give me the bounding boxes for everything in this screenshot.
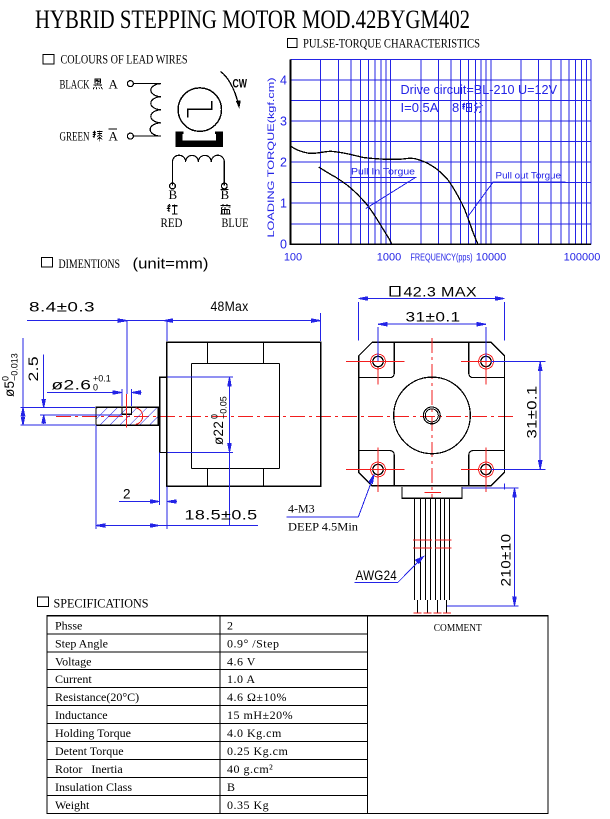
svg-text:COMMENT: COMMENT <box>434 622 482 634</box>
svg-text:210±10: 210±10 <box>499 534 514 587</box>
svg-text:4.0 Kg.cm: 4.0 Kg.cm <box>227 726 282 740</box>
svg-text:DEEP 4.5Min: DEEP 4.5Min <box>288 520 358 534</box>
svg-text:Pull out Torgue: Pull out Torgue <box>496 171 562 182</box>
svg-text:COLOURS OF LEAD WIRES: COLOURS OF LEAD WIRES <box>61 52 188 67</box>
svg-text:I=0.5A: I=0.5A <box>401 100 439 115</box>
svg-text:A: A <box>109 77 119 92</box>
svg-text:3: 3 <box>280 115 287 129</box>
svg-text:Detent Torque: Detent Torque <box>55 744 124 758</box>
svg-text:0: 0 <box>93 383 98 393</box>
svg-text:8: 8 <box>452 100 459 115</box>
svg-text:100: 100 <box>284 252 302 264</box>
svg-text:18.5±0.5: 18.5±0.5 <box>185 508 258 523</box>
svg-text:GREEN: GREEN <box>60 130 90 144</box>
svg-text:4-M3: 4-M3 <box>288 502 315 516</box>
svg-text:8.4±0.3: 8.4±0.3 <box>29 300 95 315</box>
svg-text:FREQUENCY(pps): FREQUENCY(pps) <box>411 252 473 264</box>
svg-text:−0.013: −0.013 <box>10 353 20 381</box>
svg-text:BLUE: BLUE <box>222 216 249 230</box>
svg-text:B: B <box>169 187 178 202</box>
svg-text:RED: RED <box>161 216 183 230</box>
svg-text:0.9° /Step: 0.9° /Step <box>227 636 279 650</box>
svg-text:AWG24: AWG24 <box>356 568 398 583</box>
svg-text:Phsse: Phsse <box>55 618 82 632</box>
svg-text:31±0.1: 31±0.1 <box>406 310 461 325</box>
svg-text:10000: 10000 <box>476 252 507 264</box>
svg-text:31±0.1: 31±0.1 <box>525 386 540 439</box>
svg-text:B: B <box>227 780 236 794</box>
svg-text:15 mH±20%: 15 mH±20% <box>227 708 293 722</box>
svg-text:Weight: Weight <box>55 798 90 812</box>
svg-text:4: 4 <box>280 74 287 88</box>
svg-text:0.35 Kg: 0.35 Kg <box>227 798 269 812</box>
svg-text:CW: CW <box>233 79 248 91</box>
svg-text:ø5: ø5 <box>2 381 17 397</box>
svg-text:2: 2 <box>227 618 234 632</box>
svg-text:0.25 Kg.cm: 0.25 Kg.cm <box>227 744 288 758</box>
svg-text:Inductance: Inductance <box>55 708 108 722</box>
svg-text:Resistance(20°C): Resistance(20°C) <box>55 690 139 704</box>
svg-text:4.6 Ω±10%: 4.6 Ω±10% <box>227 690 287 704</box>
svg-text:0: 0 <box>280 238 287 252</box>
svg-text:Voltage: Voltage <box>55 654 91 668</box>
svg-text:48Max: 48Max <box>211 299 249 314</box>
svg-text:(unit=mm): (unit=mm) <box>133 256 209 273</box>
svg-text:−0.05: −0.05 <box>219 396 229 419</box>
svg-text:BLACK: BLACK <box>60 78 90 92</box>
svg-text:2: 2 <box>280 156 287 170</box>
svg-text:ø2.6: ø2.6 <box>51 378 91 393</box>
svg-text:Rotor Inertia: Rotor Inertia <box>55 762 123 776</box>
svg-text:SPECIFICATIONS: SPECIFICATIONS <box>54 596 149 611</box>
svg-text:Holding Torque: Holding Torque <box>55 726 131 740</box>
svg-text:4.6 V: 4.6 V <box>227 654 256 668</box>
svg-text:2: 2 <box>123 487 131 502</box>
svg-text:40 g.cm²: 40 g.cm² <box>227 762 273 776</box>
svg-text:DIMENTIONS: DIMENTIONS <box>59 256 121 271</box>
svg-text:LOADING TORQUE(kgf.cm): LOADING TORQUE(kgf.cm) <box>266 78 277 238</box>
svg-text:Step Angle: Step Angle <box>55 636 108 650</box>
svg-text:100000: 100000 <box>564 252 601 264</box>
svg-text:ø22: ø22 <box>211 421 226 445</box>
svg-text:Insulation Class: Insulation Class <box>55 780 132 794</box>
svg-text:Pull In Torgue: Pull In Torgue <box>351 167 415 178</box>
svg-text:42.3 MAX: 42.3 MAX <box>404 285 478 300</box>
svg-text:1000: 1000 <box>377 252 401 264</box>
svg-text:Drive circuit=BL-210 U=12V: Drive circuit=BL-210 U=12V <box>401 82 558 97</box>
svg-text:1: 1 <box>280 197 287 211</box>
svg-text:A: A <box>109 129 119 144</box>
svg-text:1.0 A: 1.0 A <box>227 672 256 686</box>
svg-text:HYBRID STEPPING MOTOR MOD.42BY: HYBRID STEPPING MOTOR MOD.42BYGM402 <box>35 5 470 34</box>
svg-text:PULSE-TORQUE CHARACTERISTICS: PULSE-TORQUE CHARACTERISTICS <box>303 36 480 51</box>
svg-text:Current: Current <box>55 672 92 686</box>
svg-text:2.5: 2.5 <box>26 356 41 382</box>
